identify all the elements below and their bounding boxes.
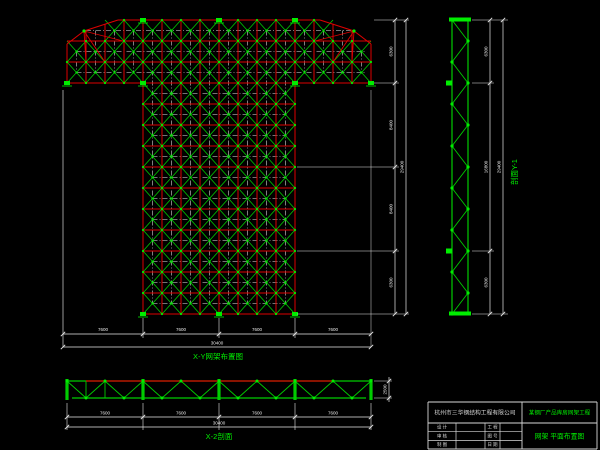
node-dot — [332, 61, 334, 63]
corner-edge — [67, 31, 84, 44]
dim-text: 30400 — [211, 341, 224, 346]
dim-text: 7600 — [98, 327, 109, 332]
node-dot — [189, 134, 191, 136]
node-dot — [161, 40, 163, 42]
node-dot — [208, 197, 210, 199]
node-dot — [237, 82, 239, 84]
node-dot — [123, 82, 125, 84]
node-dot — [161, 208, 163, 210]
node-dot — [303, 71, 305, 73]
node-dot — [246, 134, 248, 136]
node-dot — [82, 29, 85, 32]
node-dot — [199, 250, 201, 252]
node-dot — [189, 113, 191, 115]
support-mark — [216, 18, 222, 22]
node-dot — [246, 155, 248, 157]
cad-drawing: 760076007600760030400X-Y网架布置图63008400840… — [0, 0, 600, 450]
member-line — [181, 381, 200, 398]
node-dot — [75, 71, 77, 73]
node-dot — [151, 260, 153, 262]
node-dot — [161, 397, 164, 400]
node-dot — [132, 29, 134, 31]
node-dot — [199, 292, 201, 294]
member-line — [452, 272, 468, 293]
member-line — [452, 188, 468, 209]
dim-text: 6300 — [484, 46, 489, 57]
corner-edge — [84, 20, 118, 31]
node-dot — [246, 71, 248, 73]
table-row-label: 审 核 — [437, 432, 448, 439]
node-dot — [294, 40, 296, 42]
section-y1-title: 剖面Y-1 — [509, 159, 519, 185]
dim-text: 7600 — [328, 327, 339, 332]
node-dot — [275, 313, 277, 315]
node-dot — [170, 176, 172, 178]
node-dot — [275, 208, 277, 210]
node-dot — [294, 166, 296, 168]
node-dot — [265, 239, 267, 241]
node-dot — [161, 313, 163, 315]
node-dot — [237, 103, 239, 105]
node-dot — [265, 302, 267, 304]
node-dot — [227, 260, 229, 262]
node-dot — [246, 239, 248, 241]
member-line — [124, 381, 143, 398]
corner-edge — [320, 20, 354, 31]
node-dot — [237, 397, 240, 400]
node-dot — [170, 29, 172, 31]
node-dot — [180, 124, 182, 126]
node-dot — [208, 113, 210, 115]
node-dot — [151, 197, 153, 199]
node-dot — [303, 29, 305, 31]
node-dot — [199, 229, 201, 231]
node-dot — [466, 207, 469, 210]
node-dot — [218, 208, 220, 210]
node-dot — [237, 61, 239, 63]
node-dot — [265, 260, 267, 262]
node-dot — [161, 82, 163, 84]
node-dot — [180, 271, 182, 273]
node-dot — [189, 176, 191, 178]
node-dot — [180, 166, 182, 168]
node-dot — [199, 208, 201, 210]
node-dot — [199, 397, 202, 400]
member-line — [257, 381, 276, 398]
node-dot — [189, 302, 191, 304]
node-dot — [450, 270, 453, 273]
node-dot — [199, 82, 201, 84]
node-dot — [218, 103, 220, 105]
node-dot — [275, 271, 277, 273]
node-dot — [237, 250, 239, 252]
node-dot — [218, 271, 220, 273]
node-dot — [246, 29, 248, 31]
node-dot — [237, 271, 239, 273]
member-line — [452, 251, 468, 272]
node-dot — [332, 40, 334, 42]
node-dot — [352, 29, 355, 32]
node-dot — [265, 92, 267, 94]
node-dot — [151, 155, 153, 157]
node-dot — [313, 397, 316, 400]
node-dot — [151, 113, 153, 115]
node-dot — [218, 145, 220, 147]
dim-text: 8400 — [389, 119, 394, 130]
node-dot — [218, 124, 220, 126]
node-dot — [294, 229, 296, 231]
node-dot — [170, 281, 172, 283]
node-dot — [275, 229, 277, 231]
node-dot — [199, 313, 201, 315]
node-dot — [450, 102, 453, 105]
node-dot — [199, 61, 201, 63]
node-dot — [360, 50, 362, 52]
support-bracket — [446, 249, 452, 254]
table-row-label: 制 图 — [437, 441, 448, 448]
support-mark — [292, 18, 298, 22]
node-dot — [161, 229, 163, 231]
node-dot — [199, 271, 201, 273]
member-line — [67, 381, 86, 398]
node-dot — [161, 271, 163, 273]
node-dot — [466, 291, 469, 294]
node-dot — [66, 380, 69, 383]
node-dot — [275, 166, 277, 168]
node-dot — [227, 197, 229, 199]
node-dot — [151, 281, 153, 283]
node-dot — [142, 61, 144, 63]
node-dot — [161, 250, 163, 252]
node-dot — [170, 134, 172, 136]
node-dot — [256, 250, 258, 252]
node-dot — [142, 229, 144, 231]
node-dot — [180, 145, 182, 147]
dim-text: 29400 — [400, 160, 405, 173]
section-x2-view: 7600760076007600304002500X-2剖面 — [65, 377, 392, 441]
title-block: 杭州市三华钢结构工程有限公司某钢厂产品库房网架工程网架 平面布置图设 计工 程审… — [428, 402, 597, 449]
node-dot — [341, 50, 343, 52]
node-dot — [208, 260, 210, 262]
dim-text: 6300 — [389, 277, 394, 288]
node-dot — [189, 260, 191, 262]
support-mark — [140, 81, 146, 85]
node-dot — [332, 380, 335, 383]
node-dot — [199, 103, 201, 105]
member-line — [238, 381, 257, 398]
node-dot — [180, 313, 182, 315]
node-dot — [208, 29, 210, 31]
node-dot — [218, 229, 220, 231]
node-dot — [151, 92, 153, 94]
member-line — [452, 209, 468, 230]
node-dot — [180, 292, 182, 294]
node-dot — [123, 61, 125, 63]
node-dot — [161, 19, 163, 21]
node-dot — [208, 155, 210, 157]
node-dot — [237, 124, 239, 126]
node-dot — [170, 50, 172, 52]
member-line — [452, 230, 468, 251]
node-dot — [180, 250, 182, 252]
dim-text: 16800 — [484, 160, 489, 173]
node-dot — [104, 380, 107, 383]
node-dot — [227, 155, 229, 157]
node-dot — [275, 19, 277, 21]
node-dot — [294, 145, 296, 147]
node-dot — [294, 124, 296, 126]
node-dot — [151, 239, 153, 241]
node-dot — [132, 71, 134, 73]
node-dot — [142, 145, 144, 147]
node-dot — [161, 187, 163, 189]
node-dot — [237, 19, 239, 21]
node-dot — [142, 40, 144, 42]
node-dot — [256, 103, 258, 105]
member-line — [200, 381, 219, 398]
node-dot — [256, 61, 258, 63]
member-line — [452, 293, 468, 314]
node-dot — [208, 218, 210, 220]
node-dot — [351, 61, 353, 63]
node-dot — [151, 29, 153, 31]
node-dot — [85, 61, 87, 63]
node-dot — [256, 82, 258, 84]
node-dot — [303, 50, 305, 52]
node-dot — [142, 380, 145, 383]
node-dot — [284, 71, 286, 73]
node-dot — [294, 292, 296, 294]
node-dot — [227, 29, 229, 31]
node-dot — [94, 50, 96, 52]
node-dot — [246, 281, 248, 283]
node-dot — [208, 176, 210, 178]
plan-title: X-Y网架布置图 — [193, 351, 243, 361]
member-line — [452, 167, 468, 188]
node-dot — [351, 397, 354, 400]
node-dot — [322, 50, 324, 52]
dim-text: 7600 — [328, 411, 339, 416]
node-dot — [199, 166, 201, 168]
node-dot — [351, 82, 353, 84]
node-dot — [180, 103, 182, 105]
node-dot — [189, 50, 191, 52]
node-dot — [246, 302, 248, 304]
node-dot — [208, 71, 210, 73]
node-dot — [142, 166, 144, 168]
node-dot — [180, 61, 182, 63]
node-dot — [256, 145, 258, 147]
node-dot — [208, 134, 210, 136]
support-mark — [368, 81, 374, 85]
node-dot — [294, 208, 296, 210]
node-dot — [370, 61, 372, 63]
node-dot — [313, 61, 315, 63]
node-dot — [313, 82, 315, 84]
support-mark — [64, 81, 70, 85]
node-dot — [256, 271, 258, 273]
node-dot — [227, 50, 229, 52]
node-dot — [218, 250, 220, 252]
node-dot — [189, 71, 191, 73]
node-dot — [246, 92, 248, 94]
node-dot — [151, 218, 153, 220]
member-line — [295, 381, 314, 398]
node-dot — [284, 50, 286, 52]
table-row-field: 工 程 — [487, 424, 498, 431]
dim-text: 7600 — [252, 327, 263, 332]
cad-viewport: 760076007600760030400X-Y网架布置图63008400840… — [0, 0, 600, 450]
node-dot — [123, 40, 125, 42]
node-dot — [256, 124, 258, 126]
node-dot — [237, 40, 239, 42]
node-dot — [237, 145, 239, 147]
node-dot — [104, 61, 106, 63]
node-dot — [284, 218, 286, 220]
node-dot — [189, 239, 191, 241]
node-dot — [227, 113, 229, 115]
node-dot — [142, 250, 144, 252]
node-dot — [466, 123, 469, 126]
node-dot — [151, 71, 153, 73]
node-dot — [189, 218, 191, 220]
node-dot — [275, 82, 277, 84]
node-dot — [284, 134, 286, 136]
node-dot — [246, 176, 248, 178]
support-mark — [292, 81, 298, 85]
node-dot — [246, 260, 248, 262]
node-dot — [180, 380, 183, 383]
node-dot — [237, 187, 239, 189]
node-dot — [237, 313, 239, 315]
member-line — [143, 381, 162, 398]
node-dot — [208, 281, 210, 283]
node-dot — [256, 380, 259, 383]
node-dot — [104, 40, 106, 42]
node-dot — [275, 187, 277, 189]
node-dot — [265, 176, 267, 178]
node-dot — [341, 71, 343, 73]
node-dot — [237, 229, 239, 231]
node-dot — [284, 113, 286, 115]
node-dot — [85, 82, 87, 84]
node-dot — [284, 302, 286, 304]
node-dot — [275, 103, 277, 105]
member-line — [452, 41, 468, 62]
node-dot — [246, 50, 248, 52]
node-dot — [332, 82, 334, 84]
node-dot — [284, 239, 286, 241]
node-dot — [170, 71, 172, 73]
node-dot — [189, 92, 191, 94]
node-dot — [237, 292, 239, 294]
node-dot — [227, 92, 229, 94]
member-line — [276, 381, 295, 398]
node-dot — [218, 380, 221, 383]
node-dot — [466, 81, 469, 84]
node-dot — [450, 186, 453, 189]
member-line — [314, 381, 333, 398]
node-dot — [161, 292, 163, 294]
node-dot — [170, 113, 172, 115]
node-dot — [256, 292, 258, 294]
project-name: 某钢厂产品库房网架工程 — [529, 409, 591, 417]
node-dot — [132, 50, 134, 52]
node-dot — [94, 71, 96, 73]
dim-text: 2500 — [383, 384, 388, 395]
support-bracket — [446, 81, 452, 86]
node-dot — [284, 92, 286, 94]
node-dot — [180, 82, 182, 84]
node-dot — [227, 239, 229, 241]
dim-text: 29400 — [497, 160, 502, 173]
member-line — [219, 381, 238, 398]
node-dot — [265, 134, 267, 136]
support-mark — [140, 18, 146, 22]
node-dot — [227, 281, 229, 283]
node-dot — [189, 155, 191, 157]
node-dot — [265, 155, 267, 157]
dim-text: 30400 — [213, 421, 226, 426]
node-dot — [450, 60, 453, 63]
node-dot — [275, 40, 277, 42]
node-dot — [161, 103, 163, 105]
node-dot — [265, 281, 267, 283]
node-dot — [466, 39, 469, 42]
node-dot — [180, 19, 182, 21]
node-dot — [284, 29, 286, 31]
support-mark — [140, 312, 146, 316]
node-dot — [170, 260, 172, 262]
node-dot — [265, 218, 267, 220]
support-mark — [216, 312, 222, 316]
node-dot — [246, 218, 248, 220]
node-dot — [351, 40, 353, 42]
node-dot — [275, 61, 277, 63]
node-dot — [123, 397, 126, 400]
node-dot — [284, 155, 286, 157]
member-line — [162, 381, 181, 398]
node-dot — [123, 19, 125, 21]
node-dot — [237, 166, 239, 168]
dim-text: 7600 — [252, 411, 263, 416]
node-dot — [294, 271, 296, 273]
node-dot — [208, 239, 210, 241]
node-dot — [142, 208, 144, 210]
end-cap — [449, 312, 471, 316]
member-line — [452, 125, 468, 146]
node-dot — [170, 155, 172, 157]
dim-text: 6300 — [389, 46, 394, 57]
node-dot — [151, 302, 153, 304]
node-dot — [170, 302, 172, 304]
node-dot — [322, 29, 324, 31]
node-dot — [208, 302, 210, 304]
node-dot — [450, 228, 453, 231]
node-dot — [294, 61, 296, 63]
node-dot — [294, 380, 297, 383]
member-line — [452, 83, 468, 104]
node-dot — [227, 218, 229, 220]
node-dot — [151, 134, 153, 136]
dim-text: 7600 — [100, 411, 111, 416]
dim-text: 8400 — [389, 203, 394, 214]
node-dot — [265, 50, 267, 52]
node-dot — [75, 50, 77, 52]
member-line — [452, 20, 468, 41]
node-dot — [170, 92, 172, 94]
node-dot — [246, 113, 248, 115]
